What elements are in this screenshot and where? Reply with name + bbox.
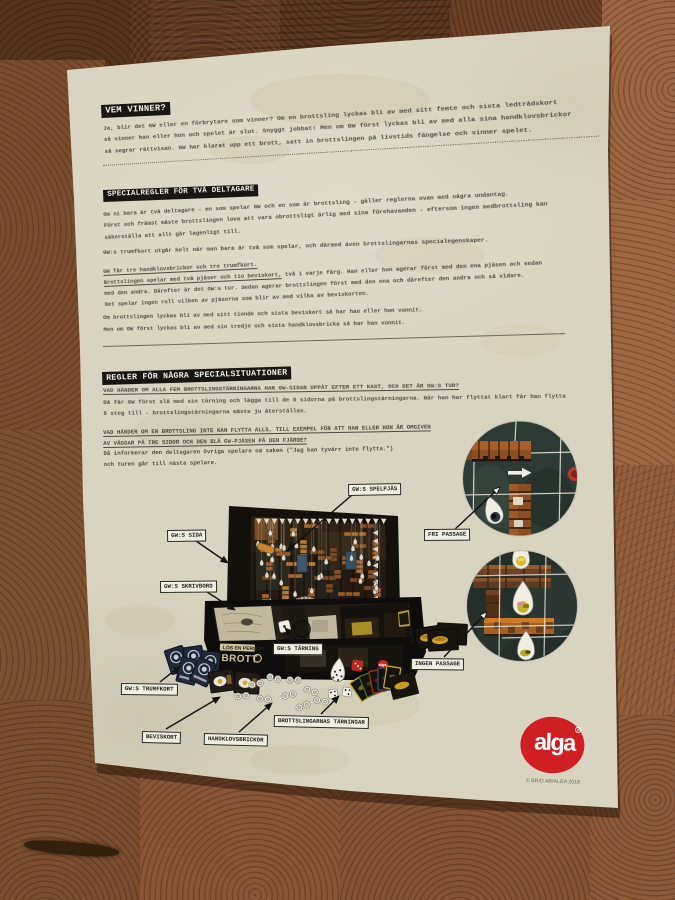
- svg-text:alga: alga: [379, 662, 388, 667]
- svg-text:BROTT: BROTT: [221, 653, 258, 665]
- svg-text:LÖS EN PERSON: LÖS EN PERSON: [223, 644, 265, 652]
- svg-text:alga: alga: [534, 728, 578, 755]
